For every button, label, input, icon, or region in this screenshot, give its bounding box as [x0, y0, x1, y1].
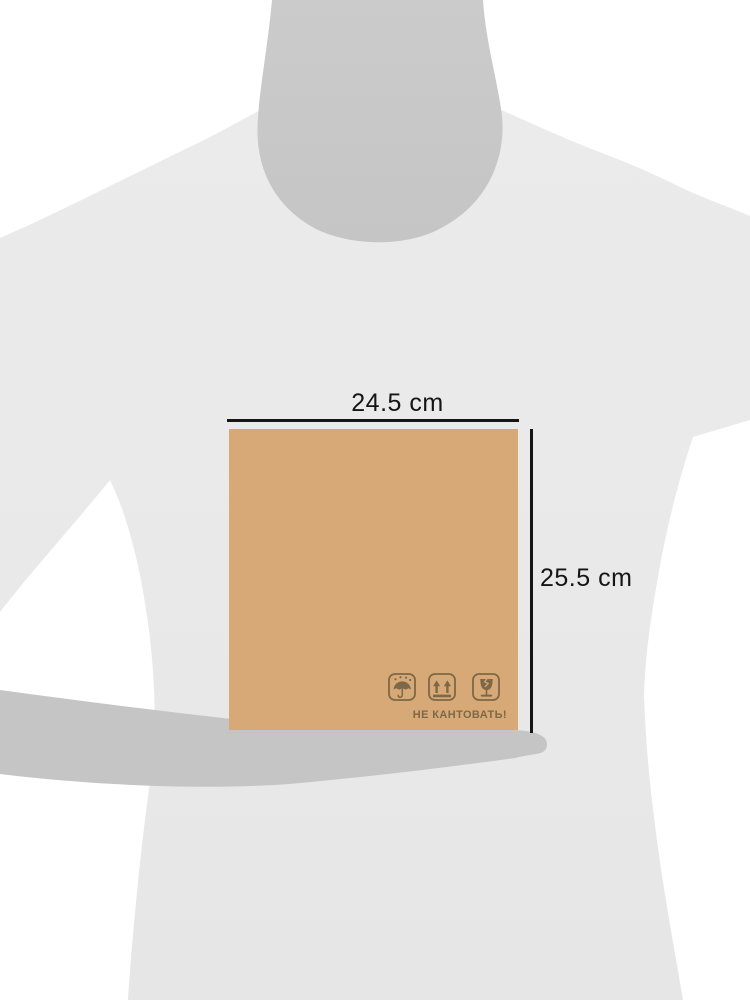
neck-silhouette [257, 0, 502, 242]
height-dimension-line [530, 429, 533, 733]
width-dimension-line [227, 419, 519, 422]
cardboard-box [229, 429, 518, 730]
scene-graphic [0, 0, 750, 1000]
product-size-mockup: 24.5 cm 25.5 cm НЕ КАНТОВАТЬ! [0, 0, 750, 1000]
width-label: 24.5 cm [330, 391, 465, 416]
box-caption: НЕ КАНТОВАТЬ! [413, 709, 507, 722]
height-label: 25.5 cm [540, 566, 632, 591]
